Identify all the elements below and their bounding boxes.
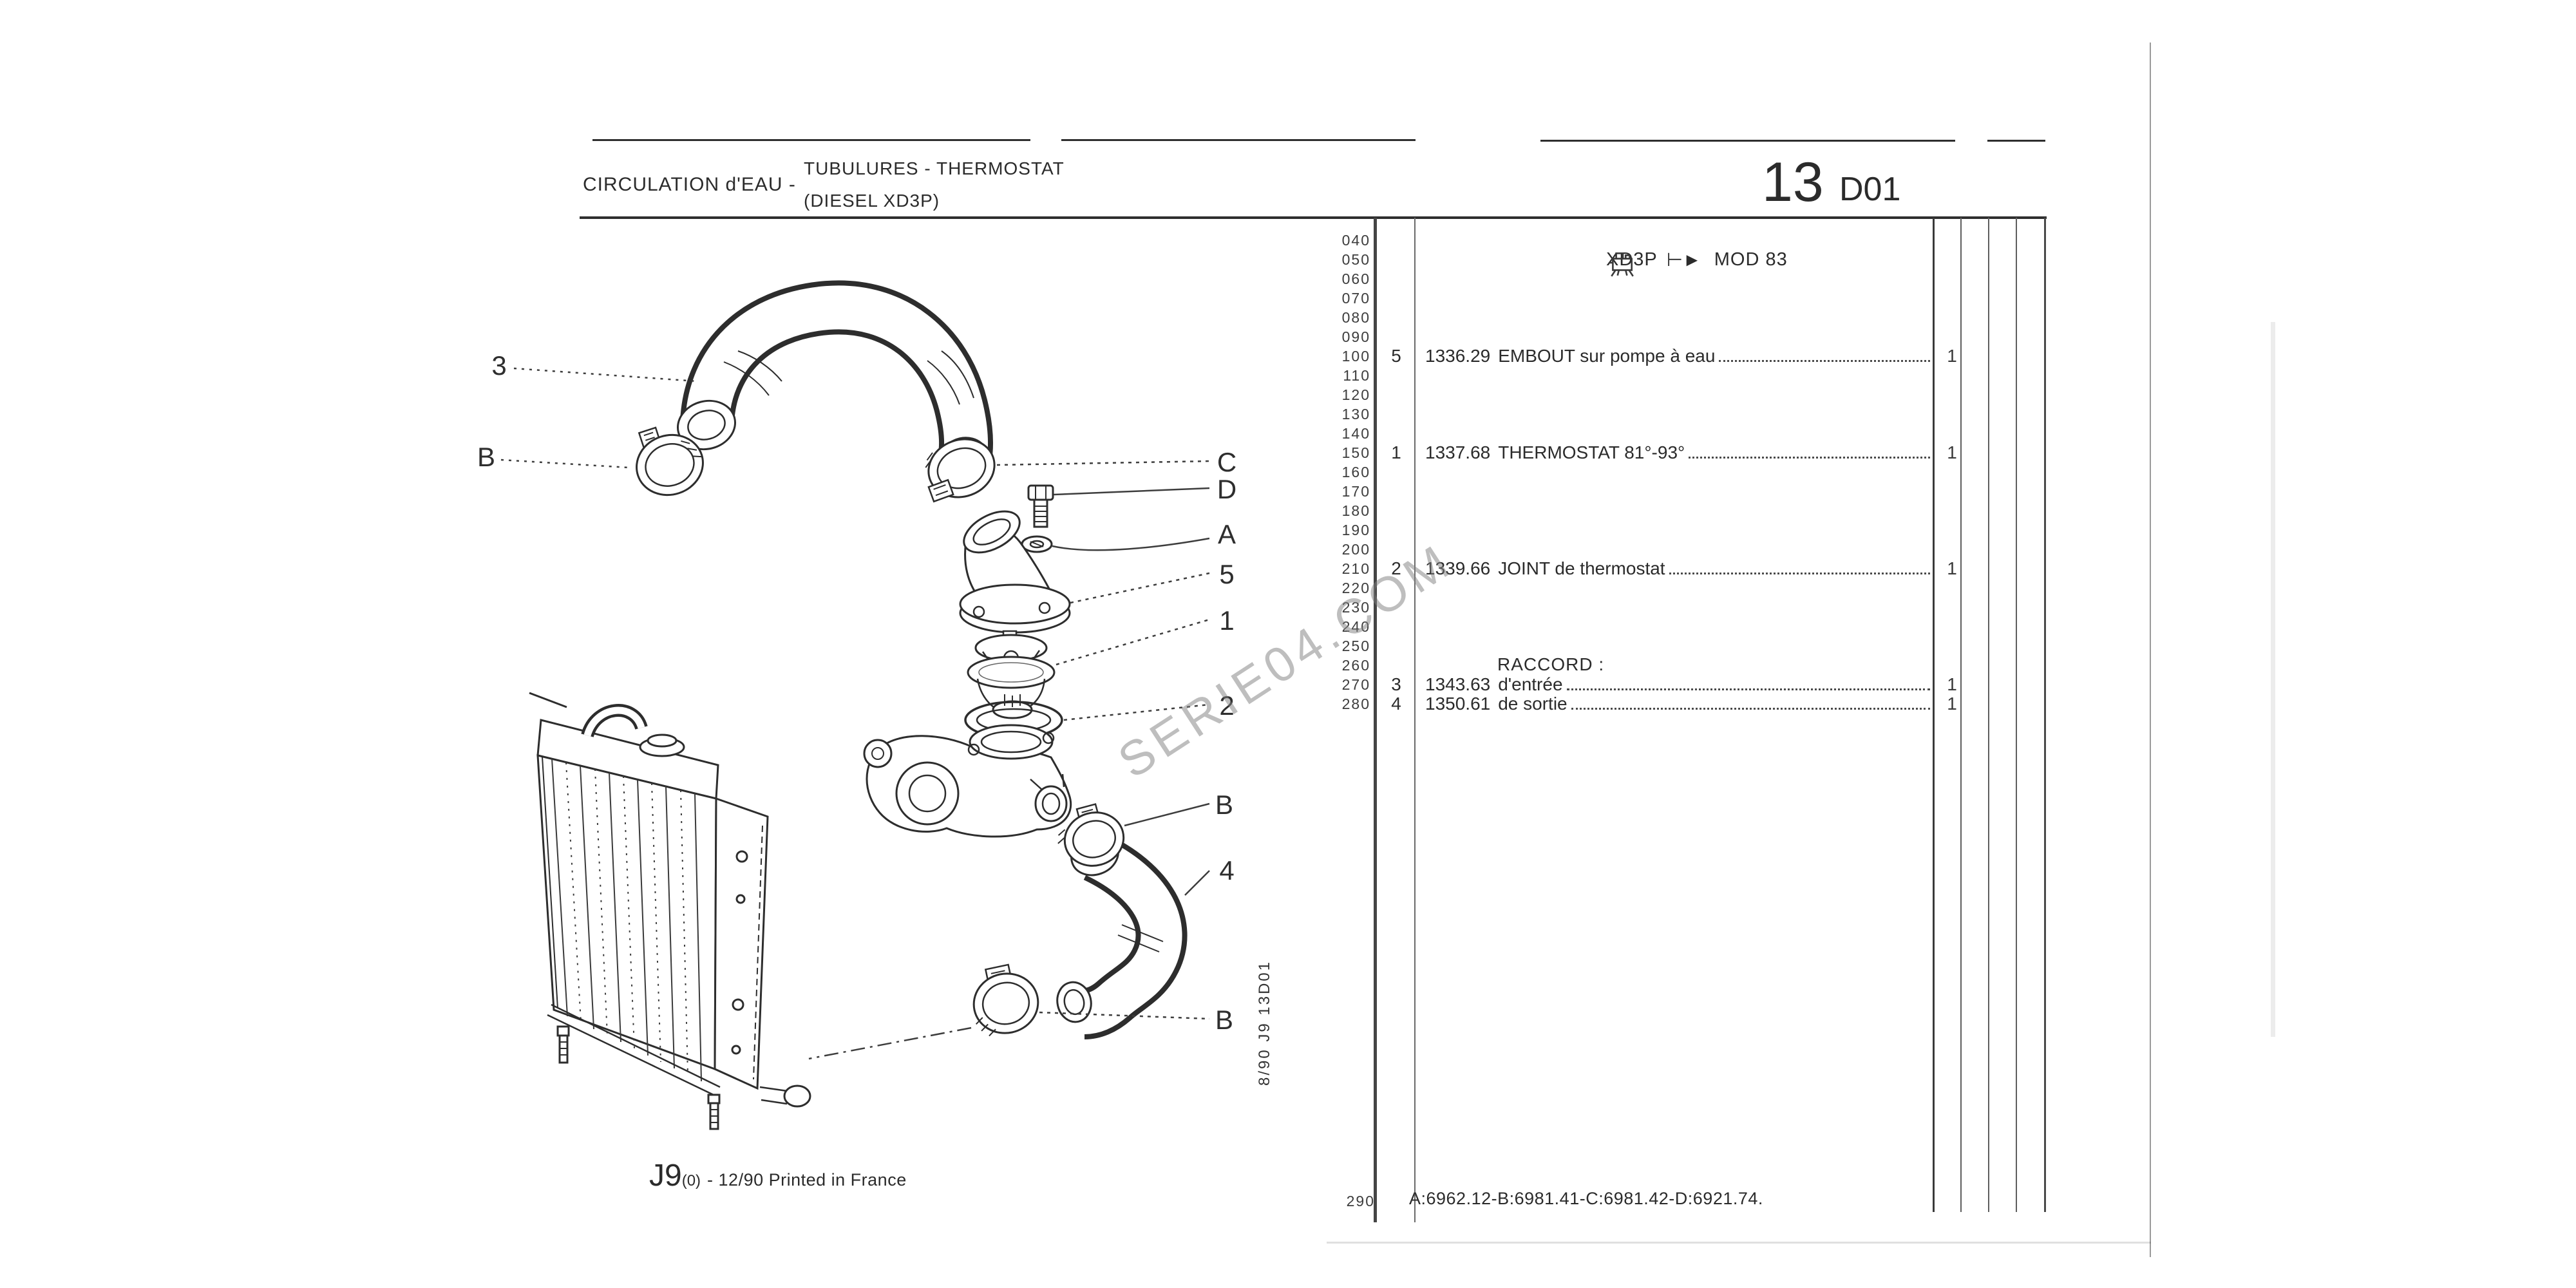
footer-variant: (0) — [682, 1172, 701, 1190]
bolt-illustration — [1028, 486, 1053, 527]
callout-label-b3: B — [1210, 1005, 1238, 1036]
radiator-illustration — [529, 693, 810, 1129]
callout-label-5: 5 — [1213, 559, 1241, 590]
mounting-stud — [708, 1095, 719, 1129]
water-pump-housing-illustration — [864, 725, 1071, 837]
footer-print-note: - 12/90 Printed in France — [707, 1170, 907, 1190]
footer-model: J9 — [649, 1158, 682, 1193]
callout-label-c: C — [1213, 447, 1241, 478]
print-footer: J9 (0) - 12/90 Printed in France — [649, 1158, 907, 1193]
callout-label-b2: B — [1210, 790, 1238, 820]
callout-label-d: D — [1213, 474, 1241, 505]
callout-label-4: 4 — [1213, 855, 1241, 886]
radiator-outlet — [784, 1086, 810, 1106]
callout-label-b1: B — [472, 442, 500, 473]
mounting-stud — [558, 1027, 569, 1063]
callout-label-3: 3 — [485, 350, 513, 381]
hose-clamp-b-lower — [965, 960, 1043, 1039]
callout-label-1: 1 — [1213, 605, 1241, 636]
callout-label-a: A — [1213, 519, 1241, 550]
thermostat-cover-illustration — [957, 503, 1070, 632]
leader-line — [529, 693, 567, 707]
print-side-code: 8/90 J9 13D01 — [1256, 960, 1274, 1086]
